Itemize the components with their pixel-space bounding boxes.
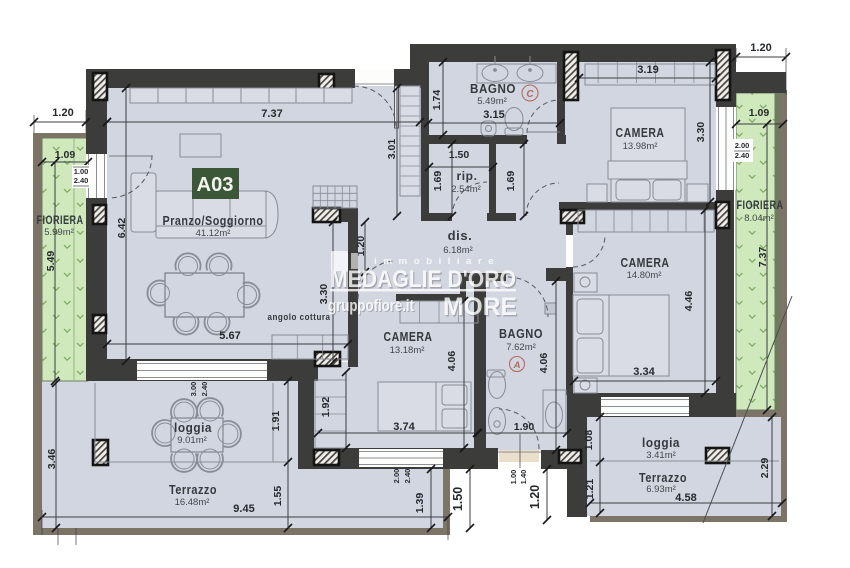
svg-text:1.09: 1.09 [55,149,76,161]
svg-text:9.45: 9.45 [233,503,254,515]
svg-text:1.39: 1.39 [414,493,426,514]
svg-text:41.12m²: 41.12m² [196,228,231,239]
svg-text:5.49: 5.49 [45,251,57,272]
svg-text:MEDAGLIE D'ORO: MEDAGLIE D'ORO [330,266,516,293]
svg-text:1.90: 1.90 [514,421,535,433]
svg-text:4.46: 4.46 [683,291,695,312]
svg-text:7.62m²: 7.62m² [506,342,536,353]
svg-text:1.69: 1.69 [505,171,517,192]
svg-text:3.19: 3.19 [637,64,658,76]
svg-text:1.20: 1.20 [52,107,73,119]
svg-text:8.04m²: 8.04m² [744,213,774,224]
svg-text:3.30: 3.30 [695,122,707,143]
svg-text:5.99m²: 5.99m² [44,227,74,238]
svg-text:4.06: 4.06 [446,351,458,372]
svg-text:16.48m²: 16.48m² [175,497,210,508]
svg-text:loggia: loggia [642,435,680,450]
svg-text:1.00: 1.00 [509,470,518,485]
svg-text:1.69: 1.69 [432,171,444,192]
svg-text:1.74: 1.74 [431,90,443,111]
svg-text:3.34: 3.34 [633,366,655,378]
svg-text:1.21: 1.21 [584,479,596,500]
svg-text:7.37: 7.37 [757,247,769,268]
svg-text:4.58: 4.58 [675,492,696,504]
svg-text:2.40: 2.40 [735,151,750,160]
svg-text:5.49m²: 5.49m² [477,96,507,107]
svg-text:1.50: 1.50 [451,487,465,511]
svg-text:2.54m²: 2.54m² [451,184,481,195]
svg-text:MORE: MORE [443,293,517,321]
svg-text:rip.: rip. [456,169,477,183]
svg-text:1.00: 1.00 [74,167,89,176]
svg-text:2.00: 2.00 [735,141,750,150]
svg-text:CAMERA: CAMERA [621,255,670,270]
svg-text:4.06: 4.06 [538,353,550,374]
svg-text:1.40: 1.40 [519,470,528,485]
svg-text:13.18m²: 13.18m² [390,345,425,356]
svg-text:13.98m²: 13.98m² [623,141,658,152]
svg-text:Terrazzo: Terrazzo [169,483,217,497]
svg-text:1.91: 1.91 [270,411,282,432]
svg-text:5.67: 5.67 [219,330,240,342]
svg-text:3.41m²: 3.41m² [646,450,676,461]
svg-text:2.29: 2.29 [759,458,771,479]
svg-text:1.09: 1.09 [749,107,770,119]
svg-text:A: A [513,360,521,371]
svg-text:3.74: 3.74 [393,421,415,433]
svg-text:dis.: dis. [448,228,473,243]
svg-text:angolo cottura: angolo cottura [268,312,331,322]
svg-text:6.93m²: 6.93m² [646,484,676,495]
svg-text:A03: A03 [197,173,234,196]
svg-text:1.50: 1.50 [449,149,470,161]
svg-text:3.46: 3.46 [46,449,58,470]
svg-text:Pranzo/Soggiorno: Pranzo/Soggiorno [163,214,264,228]
svg-text:3.01: 3.01 [386,139,398,160]
svg-text:1.20: 1.20 [528,485,542,509]
svg-text:loggia: loggia [174,420,212,435]
svg-text:1.92: 1.92 [320,397,332,418]
svg-text:2.00: 2.00 [392,469,401,484]
svg-text:1.20: 1.20 [750,42,771,54]
svg-text:6.42: 6.42 [116,218,128,239]
svg-text:3.15: 3.15 [483,109,504,121]
svg-text:FIORIERA: FIORIERA [737,198,784,212]
svg-text:14.80m²: 14.80m² [627,270,662,281]
svg-text:2.40: 2.40 [200,382,209,397]
svg-text:1.55: 1.55 [272,486,284,507]
svg-text:BAGNO: BAGNO [499,327,543,341]
svg-text:gruppofiore.it: gruppofiore.it [328,297,414,315]
svg-text:2.40: 2.40 [74,176,89,185]
svg-text:3.00: 3.00 [189,382,198,397]
svg-text:Terrazzo: Terrazzo [639,471,687,485]
svg-text:9.01m²: 9.01m² [177,435,207,446]
svg-text:FIORIERA: FIORIERA [37,213,84,227]
svg-text:7.37: 7.37 [261,108,282,120]
svg-text:CAMERA: CAMERA [616,125,665,140]
svg-text:6.18m²: 6.18m² [443,245,473,256]
svg-text:1.08: 1.08 [583,430,595,451]
svg-text:BAGNO: BAGNO [470,82,516,96]
svg-text:CAMERA: CAMERA [384,329,433,344]
svg-text:2.40: 2.40 [403,469,412,484]
svg-text:C: C [526,89,534,100]
